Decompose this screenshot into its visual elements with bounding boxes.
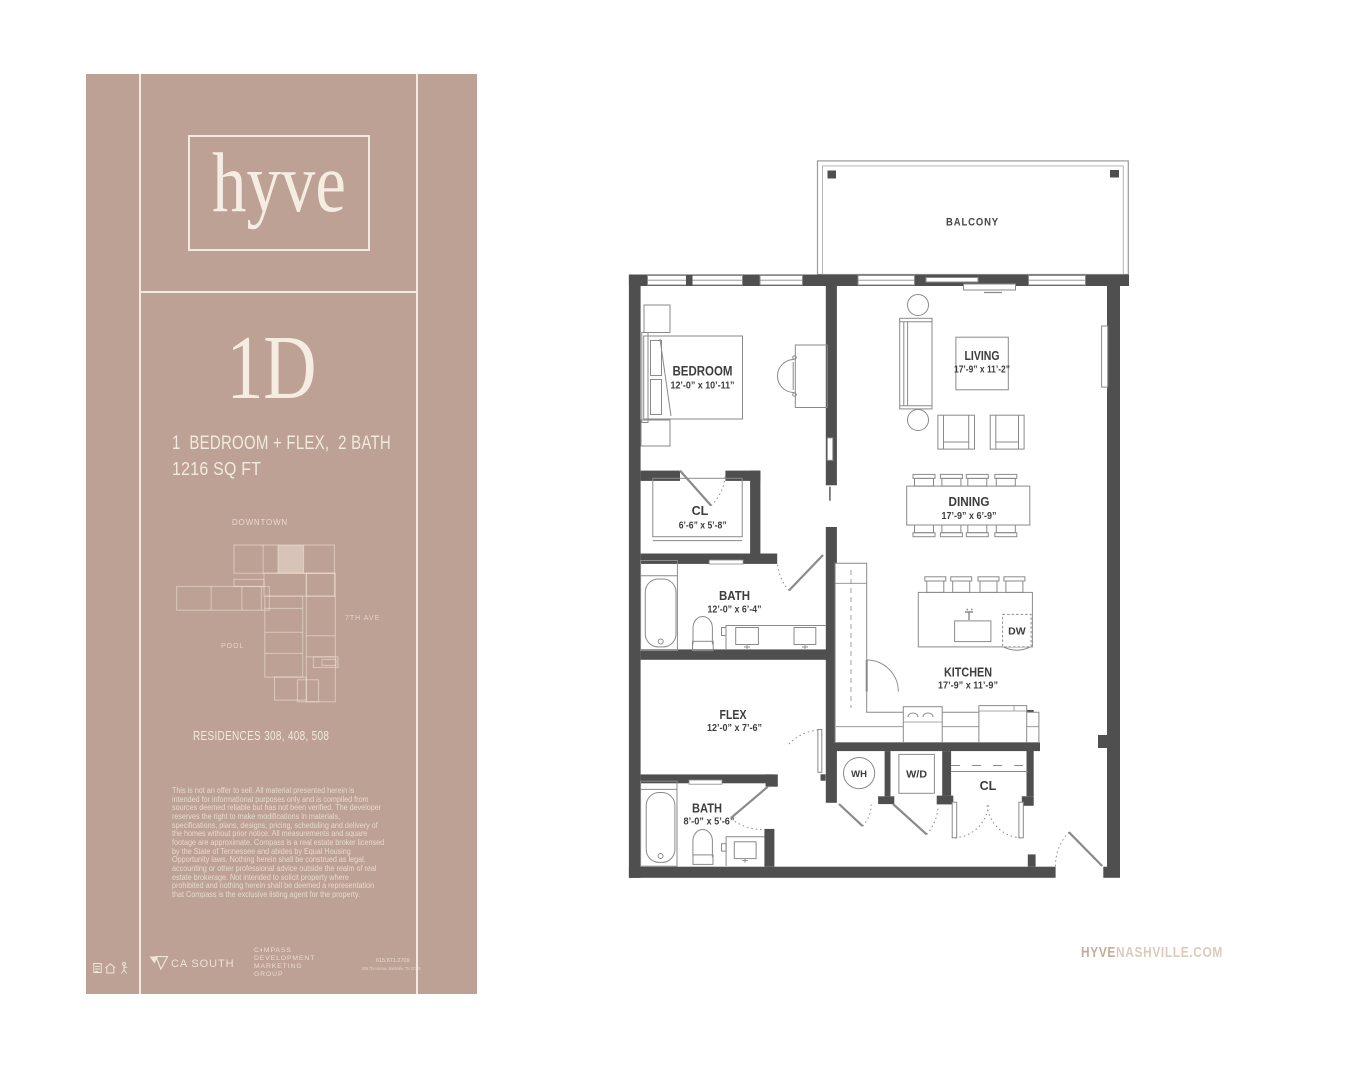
svg-text:BALCONY: BALCONY: [946, 217, 999, 229]
svg-text:CL: CL: [692, 504, 709, 518]
svg-text:17’-9” x 11’-9”: 17’-9” x 11’-9”: [938, 680, 998, 692]
svg-text:6’-6” x 5’-8”: 6’-6” x 5’-8”: [679, 520, 727, 532]
svg-text:17’-9” x 6’-9”: 17’-9” x 6’-9”: [942, 510, 997, 522]
svg-text:12’-0” x 10’-11”: 12’-0” x 10’-11”: [671, 380, 735, 392]
svg-text:FLEX: FLEX: [720, 707, 747, 722]
svg-text:WH: WH: [851, 769, 867, 780]
svg-text:LIVING: LIVING: [965, 349, 1000, 363]
svg-text:DW: DW: [1008, 626, 1026, 638]
svg-text:8’-0” x 5’-6”: 8’-0” x 5’-6”: [684, 817, 735, 828]
svg-text:12’-0” x 6’-4”: 12’-0” x 6’-4”: [708, 604, 762, 616]
svg-text:12’-0” x 7’-6”: 12’-0” x 7’-6”: [707, 722, 762, 734]
svg-text:KITCHEN: KITCHEN: [944, 665, 992, 680]
svg-text:DINING: DINING: [949, 494, 990, 509]
svg-text:BATH: BATH: [719, 588, 750, 603]
svg-text:17’-9” x 11’-2”: 17’-9” x 11’-2”: [954, 365, 1010, 376]
svg-text:CL: CL: [980, 779, 997, 793]
svg-text:W/D: W/D: [906, 770, 927, 781]
svg-text:BATH: BATH: [692, 802, 722, 816]
svg-text:BEDROOM: BEDROOM: [673, 364, 733, 379]
